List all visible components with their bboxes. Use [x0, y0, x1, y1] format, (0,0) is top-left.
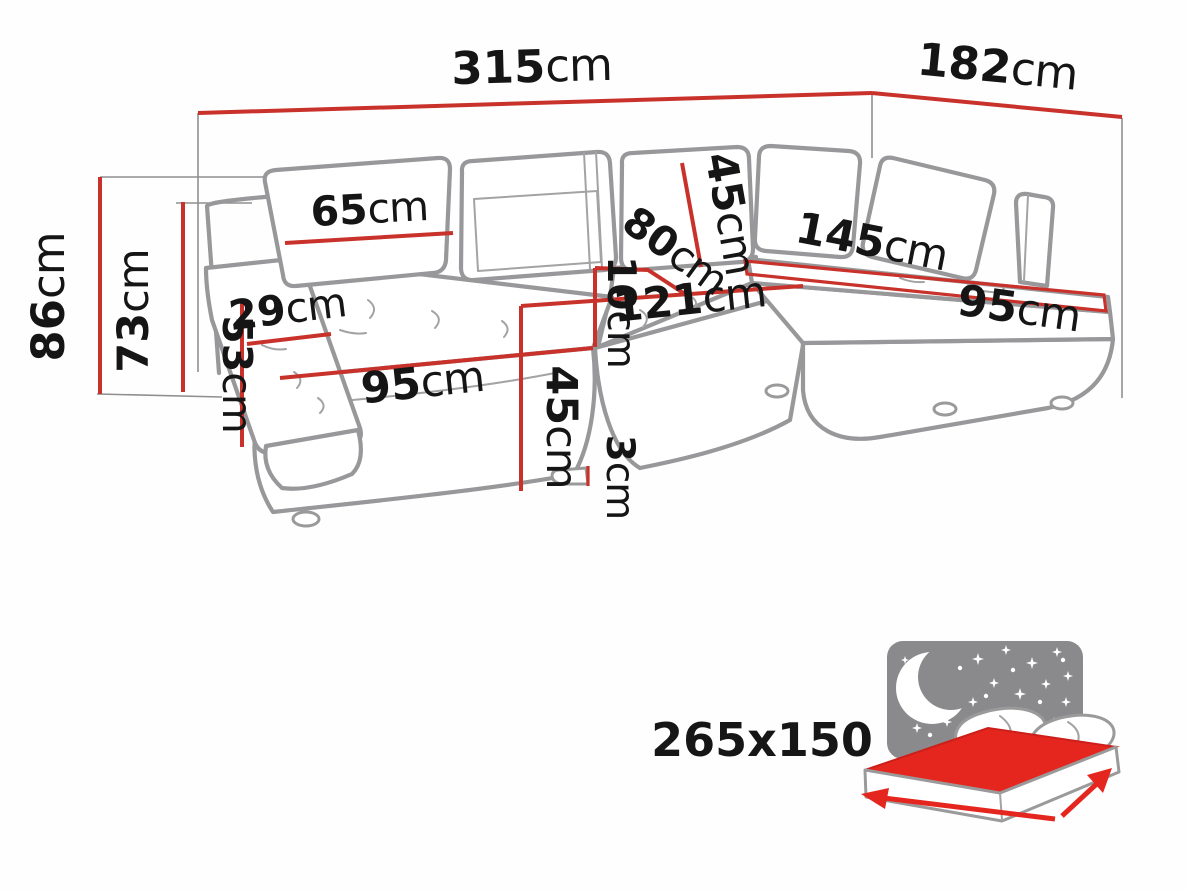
- sleeping-area-label: 265x150: [651, 713, 873, 767]
- dim-label-182: 182cm: [915, 33, 1080, 101]
- back-cushion-2: [461, 152, 616, 280]
- dim-label-65: 65cm: [309, 182, 429, 236]
- dim-label-86: 86cm: [22, 232, 75, 361]
- right-base: [803, 339, 1113, 439]
- dim-line-315: [198, 93, 872, 113]
- dim-line-182: [872, 93, 1122, 117]
- dim-label-73: 73cm: [109, 249, 159, 372]
- dim-label-45-left: 45cm: [536, 365, 586, 488]
- dim-label-315: 315cm: [451, 38, 613, 95]
- dim-label-3: 3cm: [597, 435, 642, 520]
- sofa-dimension-diagram: 315cm 182cm 86cm 73cm 53cm 29cm 65cm 95c…: [0, 0, 1187, 890]
- right-armrest: [1016, 194, 1053, 286]
- bed-icon: [861, 641, 1119, 821]
